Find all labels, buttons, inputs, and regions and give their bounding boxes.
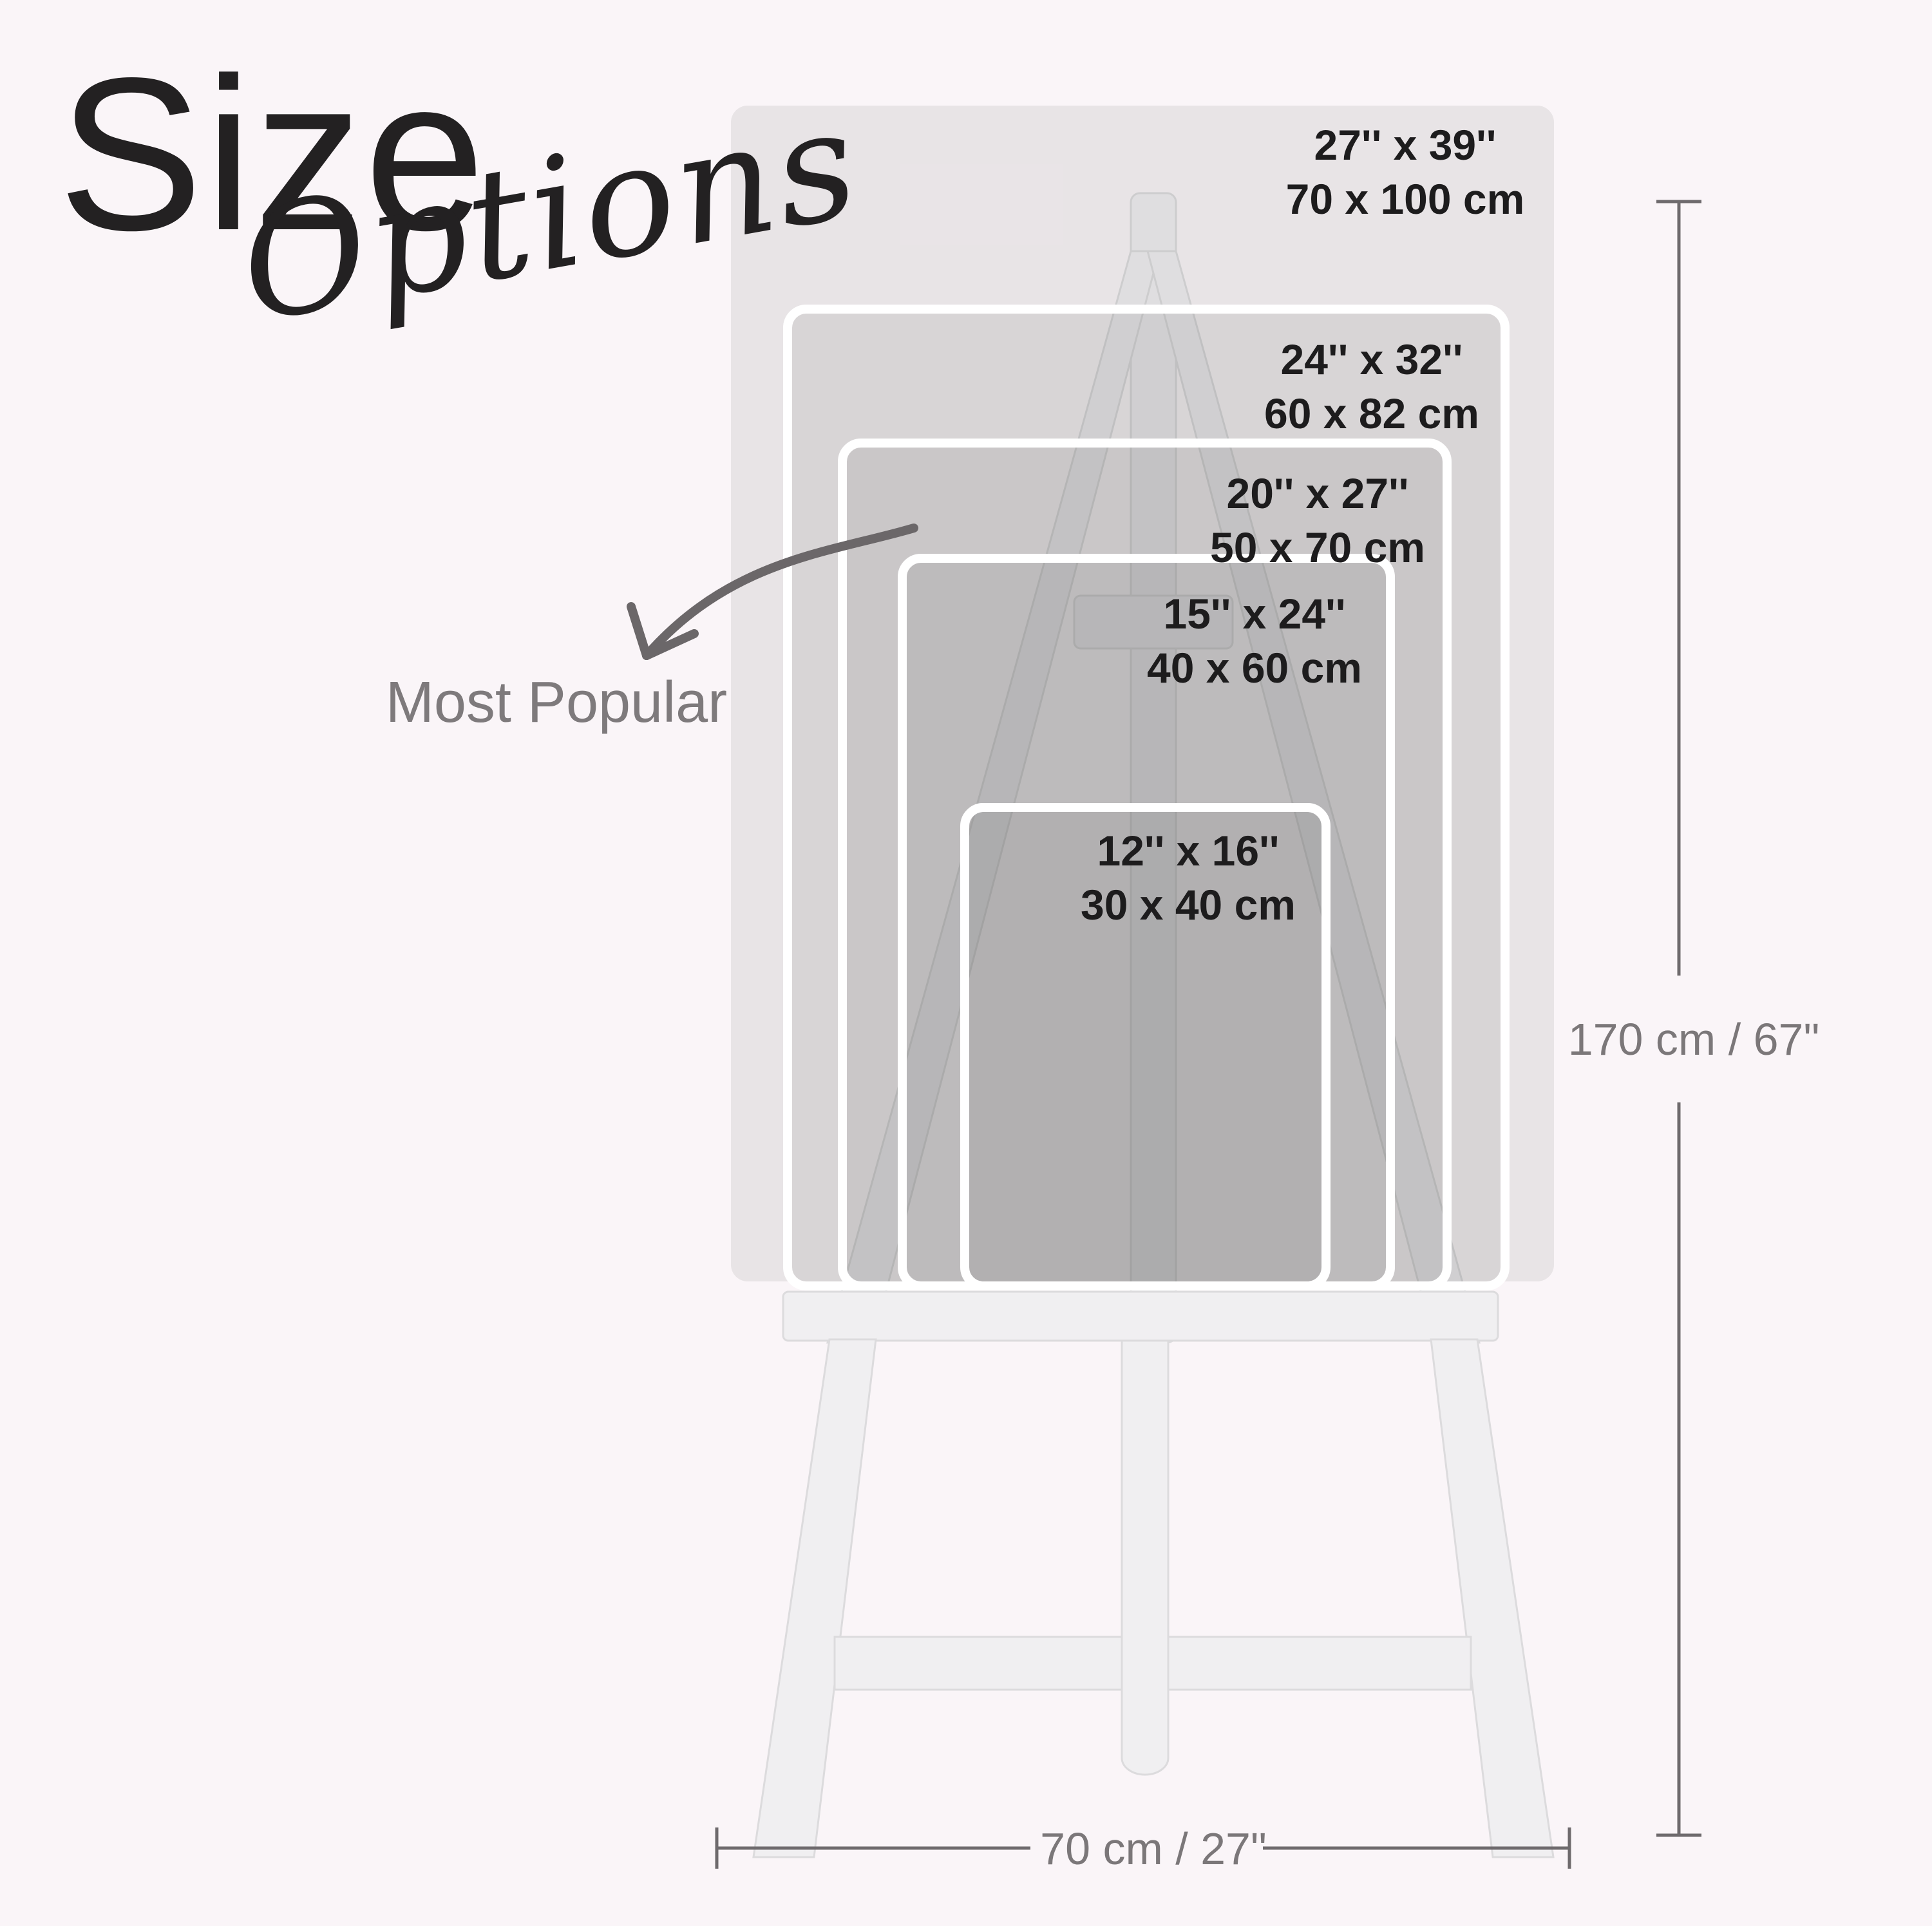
size-label-40x60: 15'' x 24'' 40 x 60 cm [1147, 587, 1362, 695]
size-cm: 50 x 70 cm [1210, 520, 1425, 574]
easel-tray [783, 1292, 1498, 1341]
size-inches: 27'' x 39'' [1286, 118, 1525, 172]
size-inches: 12'' x 16'' [1081, 824, 1296, 878]
size-cm: 30 x 40 cm [1081, 878, 1296, 932]
size-cm: 40 x 60 cm [1147, 641, 1362, 695]
size-inches: 24'' x 32'' [1264, 332, 1479, 386]
easel-left-leg [753, 1339, 876, 1857]
most-popular-label: Most Popular [386, 670, 727, 736]
size-cm: 60 x 82 cm [1264, 386, 1479, 440]
size-inches: 15'' x 24'' [1147, 587, 1362, 641]
size-label-30x40: 12'' x 16'' 30 x 40 cm [1081, 824, 1296, 932]
easel-width-label: 70 cm / 27" [1040, 1823, 1267, 1874]
size-inches: 20'' x 27'' [1210, 466, 1425, 520]
size-options-infographic: 27'' x 39'' 70 x 100 cm 24'' x 32'' 60 x… [0, 0, 1932, 1926]
easel-height-label: 170 cm / 67" [1568, 1014, 1820, 1065]
size-label-60x82: 24'' x 32'' 60 x 82 cm [1264, 332, 1479, 440]
easel-center-post [1122, 1341, 1168, 1775]
easel-right-leg [1431, 1339, 1553, 1857]
size-label-50x70: 20'' x 27'' 50 x 70 cm [1210, 466, 1425, 574]
size-cm: 70 x 100 cm [1286, 172, 1525, 226]
size-label-70x100: 27'' x 39'' 70 x 100 cm [1286, 118, 1525, 226]
